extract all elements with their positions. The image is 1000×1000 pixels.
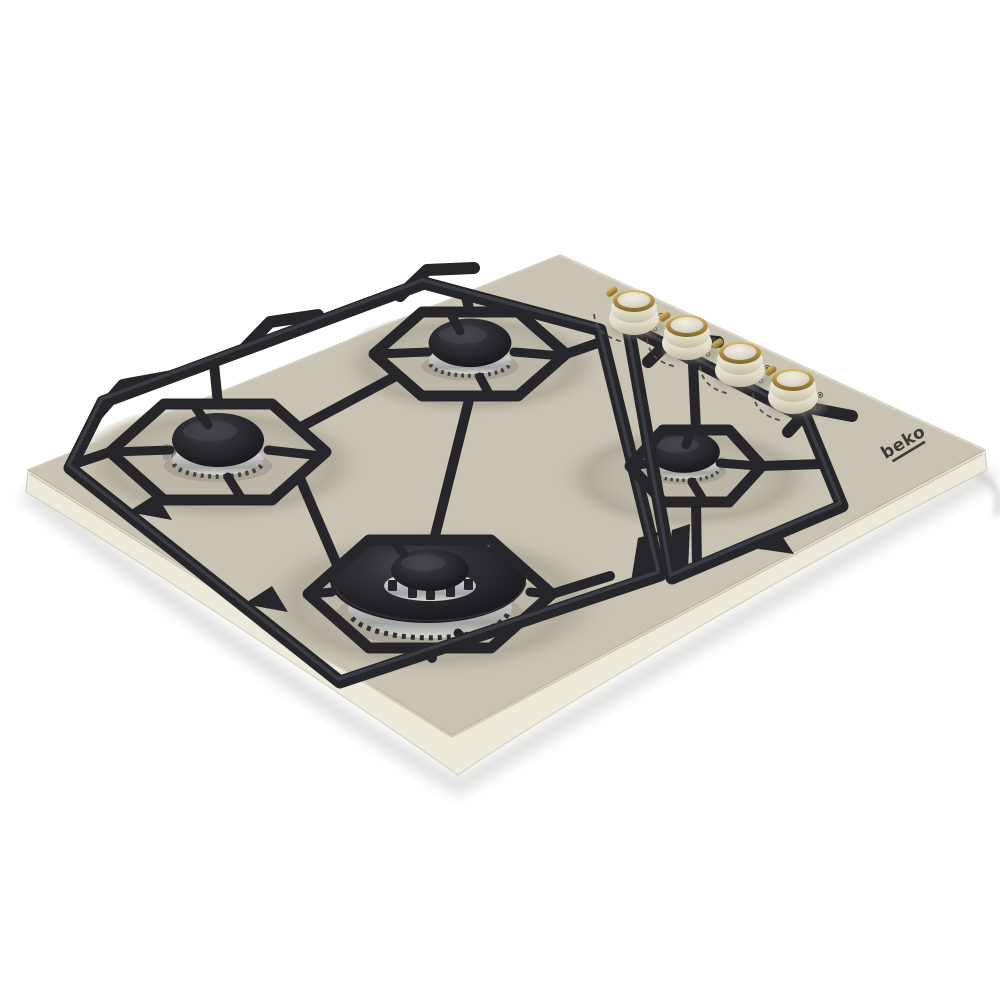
gas-hob-illustration: beko [0,0,1000,1000]
knob-top-face [671,317,704,333]
knob-top-face [618,292,651,308]
knob-top-face [777,371,810,387]
product-photo: beko [0,0,1000,1000]
knob-top-face [724,344,757,360]
cap-sheen [401,555,445,571]
